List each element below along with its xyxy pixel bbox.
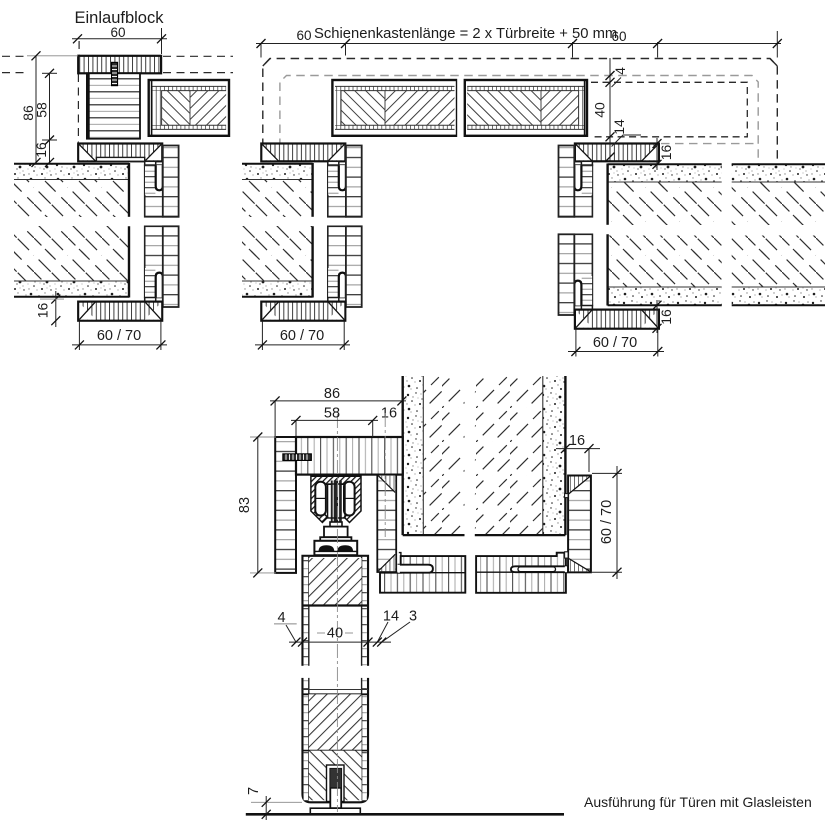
svg-text:60 / 70: 60 / 70: [280, 328, 324, 344]
svg-text:40: 40: [592, 102, 608, 118]
svg-text:14: 14: [611, 119, 627, 135]
svg-text:60 / 70: 60 / 70: [599, 500, 615, 544]
svg-text:3: 3: [409, 609, 417, 625]
svg-text:16: 16: [658, 309, 674, 325]
svg-text:7: 7: [246, 787, 262, 795]
svg-text:83: 83: [237, 497, 253, 513]
svg-text:60: 60: [110, 25, 125, 40]
svg-text:Schienenkastenlänge = 2 x Türb: Schienenkastenlänge = 2 x Türbreite + 50…: [314, 26, 617, 42]
svg-text:60: 60: [296, 28, 311, 43]
svg-text:40: 40: [327, 626, 343, 642]
svg-text:86: 86: [324, 386, 340, 402]
svg-text:16: 16: [33, 142, 49, 158]
svg-text:60 / 70: 60 / 70: [593, 335, 637, 351]
svg-text:60 / 70: 60 / 70: [97, 328, 141, 344]
svg-text:16: 16: [381, 406, 397, 422]
svg-text:Ausführung für Türen mit Glasl: Ausführung für Türen mit Glasleisten: [584, 794, 812, 810]
svg-text:4: 4: [612, 67, 628, 75]
svg-text:14: 14: [383, 609, 399, 625]
svg-text:4: 4: [277, 610, 285, 626]
svg-text:58: 58: [324, 406, 340, 422]
svg-text:58: 58: [34, 102, 50, 118]
svg-text:16: 16: [569, 433, 585, 449]
svg-text:16: 16: [35, 303, 51, 319]
svg-text:16: 16: [658, 145, 674, 161]
